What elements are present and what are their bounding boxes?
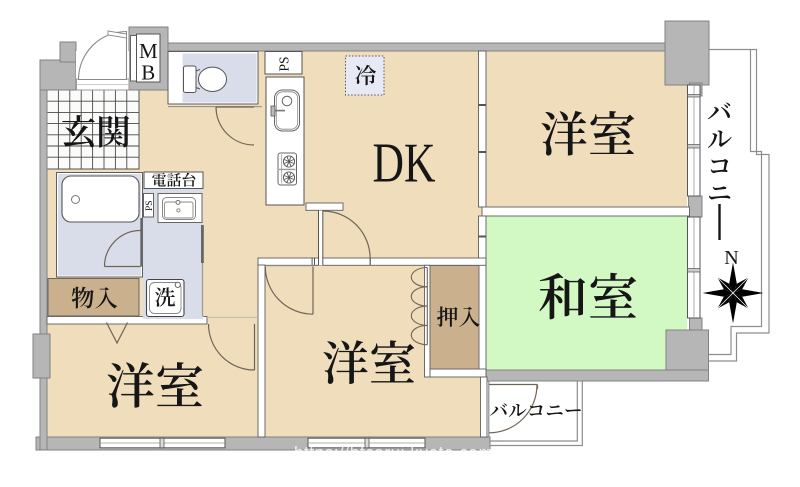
svg-text:DK: DK xyxy=(373,133,436,195)
svg-text:PS: PS xyxy=(277,56,292,71)
svg-text:PS: PS xyxy=(145,200,155,211)
svg-text:https://hfcarui.kyoto.com/: https://hfcarui.kyoto.com/ xyxy=(294,443,499,462)
svg-text:N: N xyxy=(724,247,738,269)
svg-text:M: M xyxy=(139,39,158,63)
svg-text:B: B xyxy=(141,61,155,85)
